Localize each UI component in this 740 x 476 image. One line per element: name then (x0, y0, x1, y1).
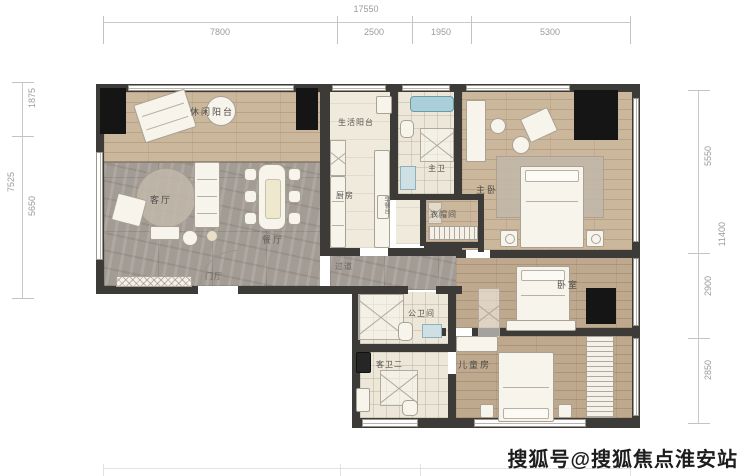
nightstand (500, 230, 518, 247)
coffee-table (150, 226, 180, 240)
toilet-guest-bath (402, 400, 418, 416)
wall-kitchen-bottom-a (320, 248, 360, 256)
tall-cabinet (330, 140, 346, 176)
window-balcony (128, 85, 294, 91)
wall-bath-kids-b (448, 374, 456, 420)
dining-chair (288, 212, 301, 225)
toilet-public (398, 322, 413, 341)
dim-line-left (22, 82, 23, 298)
pouf (182, 230, 198, 246)
master-bed (520, 166, 584, 248)
window-master-bath (402, 85, 450, 91)
window-right-lower (633, 338, 639, 416)
dim-top-seg1: 7800 (210, 27, 230, 37)
wall-bath-kids-a (448, 292, 456, 352)
wall-kitchen-bottom-b (388, 248, 462, 256)
kids-nightstand (480, 404, 494, 418)
sink-public (422, 324, 442, 338)
window-service-balcony (332, 85, 386, 91)
vanity-guest-bath (356, 388, 370, 412)
sofa (194, 162, 220, 228)
dining-chair (288, 168, 301, 181)
label-bedroom: 卧室 (557, 278, 579, 291)
window-bath-bottom (362, 419, 418, 427)
dim-left-total: 7525 (6, 172, 16, 192)
label-living-room: 客厅 (150, 193, 172, 206)
nightstand (586, 230, 604, 247)
dining-chair (244, 168, 257, 181)
cloak-hangers (428, 226, 478, 240)
wall-kitchen-living (320, 84, 330, 252)
kids-wardrobe (586, 336, 614, 418)
dining-table (258, 164, 286, 230)
dim-right-seg1: 5550 (703, 146, 713, 166)
kitchen-counter-left (330, 176, 346, 248)
dim-left-seg2: 5650 (27, 196, 37, 216)
floor-plan-canvas: 17550 7800 2500 1950 5300 7525 1875 5650… (0, 0, 740, 476)
label-service-balcony: 生活阳台 (338, 117, 374, 128)
wall-bath-divider (352, 344, 456, 352)
kids-nightstand (558, 404, 572, 418)
washer (376, 96, 392, 114)
window-living-left (96, 152, 103, 260)
dim-right-seg2: 2900 (703, 276, 713, 296)
shaft-master-bedroom (574, 90, 618, 140)
window-right-upper (633, 98, 639, 242)
wall-corridor-bottom-a (356, 286, 408, 294)
window-right-mid (633, 258, 639, 326)
wall-bath-bottom (390, 194, 484, 200)
dining-chair (288, 190, 301, 203)
label-master-bath: 主卫 (428, 163, 446, 174)
ottoman (512, 136, 530, 154)
dining-chair (244, 212, 257, 225)
dim-top-seg4: 5300 (540, 27, 560, 37)
pier-balcony-left (100, 88, 126, 134)
dim-top-seg2: 2500 (364, 27, 384, 37)
label-cloakroom: 衣帽间 (430, 209, 457, 220)
shoe-cabinet (116, 276, 192, 287)
label-guest-bath2: 客卫二 (376, 359, 403, 370)
dim-top-seg3: 1950 (431, 27, 451, 37)
wall-cloak-left (420, 196, 426, 246)
shaft-bedroom2 (586, 288, 616, 324)
label-kids-room: 儿童房 (458, 358, 491, 371)
window-master-bedroom-top (466, 85, 570, 91)
dresser (466, 100, 486, 162)
wall-bath-bedroom (454, 84, 462, 196)
dining-chair (244, 190, 257, 203)
bench-bedroom2 (506, 320, 576, 331)
kids-bed (498, 352, 554, 422)
dim-right-seg3: 2850 (703, 360, 713, 380)
label-master-bedroom: 主卧 (476, 183, 498, 196)
wall-cloak-bottom (424, 242, 482, 248)
dim-line-top (103, 22, 630, 23)
label-dining-room: 餐厅 (262, 233, 284, 246)
vanity-master (400, 166, 416, 190)
kids-desk (456, 336, 498, 352)
label-corridor: 过道 (335, 261, 353, 272)
label-leisure-balcony: 休闲阳台 (190, 105, 234, 118)
sohu-watermark: 搜狐号@搜狐焦点淮安站 (507, 443, 738, 472)
dim-line-right (698, 90, 699, 423)
label-entry-hall: 门厅 (205, 271, 223, 282)
dresser-stool (490, 118, 506, 134)
bathtub (410, 96, 454, 112)
dim-left-seg1: 1875 (27, 88, 37, 108)
toilet-master (400, 120, 414, 138)
bed-bedroom2 (516, 266, 570, 324)
dim-right-total: 11400 (717, 222, 727, 246)
wall-bottom-left-b (238, 286, 356, 294)
label-public-bath: 公卫间 (408, 308, 435, 319)
wall-bottom-left-a (96, 286, 198, 294)
floor-lamp (206, 230, 218, 242)
label-kitchen: 厨房 (336, 190, 354, 201)
wall-bed-divider-a (456, 250, 466, 258)
dim-top-total: 17550 (353, 4, 378, 14)
wall-bed-divider-b (490, 250, 632, 258)
washer-guest-bath (356, 352, 371, 373)
shower-master (420, 128, 454, 162)
pier-balcony-right (296, 88, 318, 130)
wardrobe-bedroom2 (478, 288, 500, 338)
label-breakfast-bar: 早餐台 (382, 196, 391, 226)
